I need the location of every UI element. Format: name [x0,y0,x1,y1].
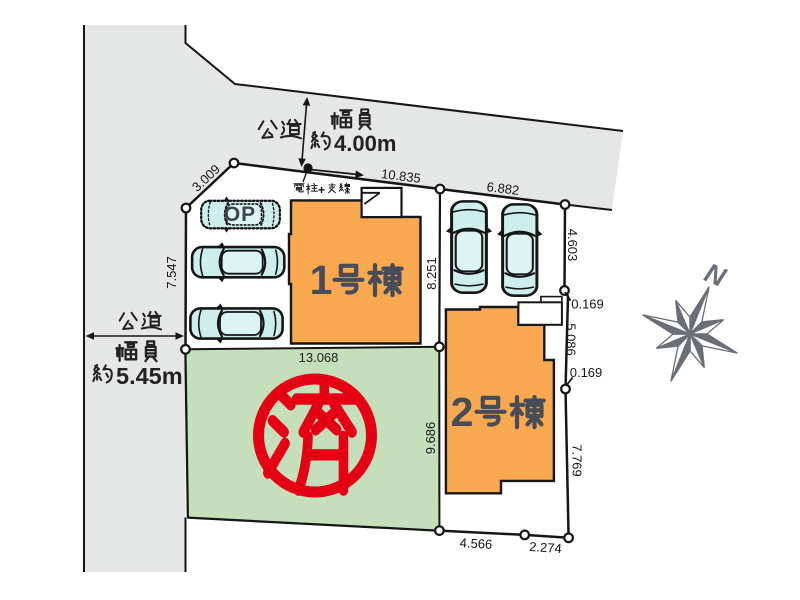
svg-text:8.251: 8.251 [424,257,439,290]
svg-text:4.603: 4.603 [565,229,580,262]
svg-text:5.086: 5.086 [564,323,579,356]
svg-text:4.00m: 4.00m [334,131,396,156]
svg-text:OP: OP [224,203,256,226]
svg-text:9.686: 9.686 [423,422,438,455]
svg-text:0.169: 0.169 [571,297,604,312]
svg-text:2.274: 2.274 [529,539,563,556]
svg-text:+: + [318,183,325,197]
svg-text:2: 2 [451,389,474,435]
svg-text:13.068: 13.068 [299,350,339,365]
svg-text:7.769: 7.769 [570,444,585,477]
svg-text:0.169: 0.169 [570,365,603,380]
svg-text:1: 1 [310,257,333,303]
svg-text:5.45m: 5.45m [116,363,183,389]
svg-text:4.566: 4.566 [459,535,492,552]
svg-text:7.547: 7.547 [164,256,179,289]
